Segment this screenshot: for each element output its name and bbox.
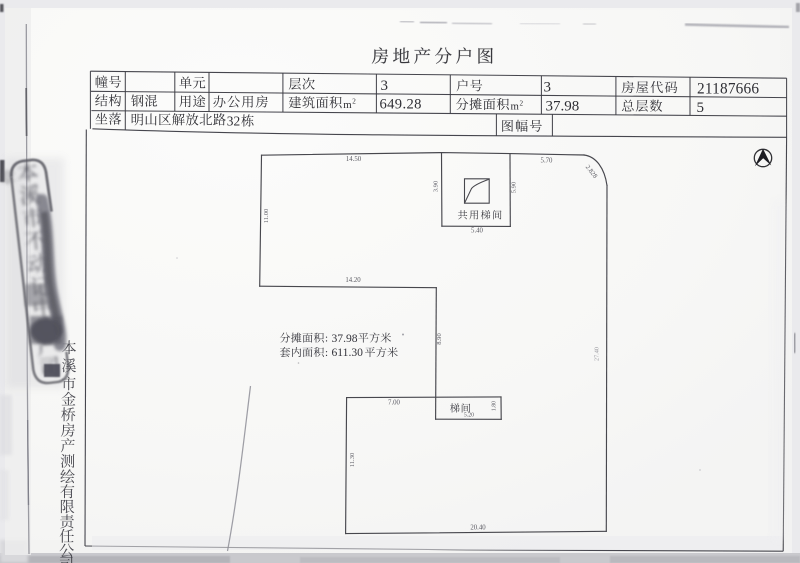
svg-text:7.00: 7.00	[388, 400, 400, 407]
svg-text:m: m	[511, 101, 520, 113]
svg-text:3: 3	[381, 78, 389, 94]
svg-text:37.98: 37.98	[546, 99, 580, 115]
svg-text:5.40: 5.40	[471, 228, 483, 235]
svg-text:20.40: 20.40	[470, 525, 486, 532]
svg-text:5.20: 5.20	[464, 413, 474, 419]
svg-text:1.80: 1.80	[491, 401, 497, 411]
svg-text:5.70: 5.70	[541, 157, 553, 164]
svg-text:11.30: 11.30	[349, 452, 356, 467]
svg-text:14.20: 14.20	[345, 277, 361, 284]
svg-text::: :	[325, 332, 328, 344]
svg-text:21187666: 21187666	[697, 81, 759, 98]
svg-text:611.30: 611.30	[332, 346, 364, 359]
svg-text:37.98: 37.98	[332, 332, 358, 345]
svg-text:3: 3	[544, 80, 552, 96]
svg-text:3.90: 3.90	[432, 180, 439, 192]
svg-text:11.00: 11.00	[263, 208, 270, 223]
svg-text:m: m	[343, 99, 352, 111]
svg-text::: :	[325, 347, 328, 359]
svg-text:27.40: 27.40	[594, 347, 601, 361]
svg-text:8.90: 8.90	[436, 333, 443, 345]
svg-text:2: 2	[520, 99, 524, 107]
svg-text:32: 32	[227, 113, 240, 128]
svg-text:5.90: 5.90	[511, 181, 518, 193]
svg-text:14.50: 14.50	[346, 156, 362, 163]
svg-text:5: 5	[697, 100, 705, 116]
svg-text:2: 2	[352, 98, 356, 106]
svg-text:649.28: 649.28	[380, 97, 422, 113]
